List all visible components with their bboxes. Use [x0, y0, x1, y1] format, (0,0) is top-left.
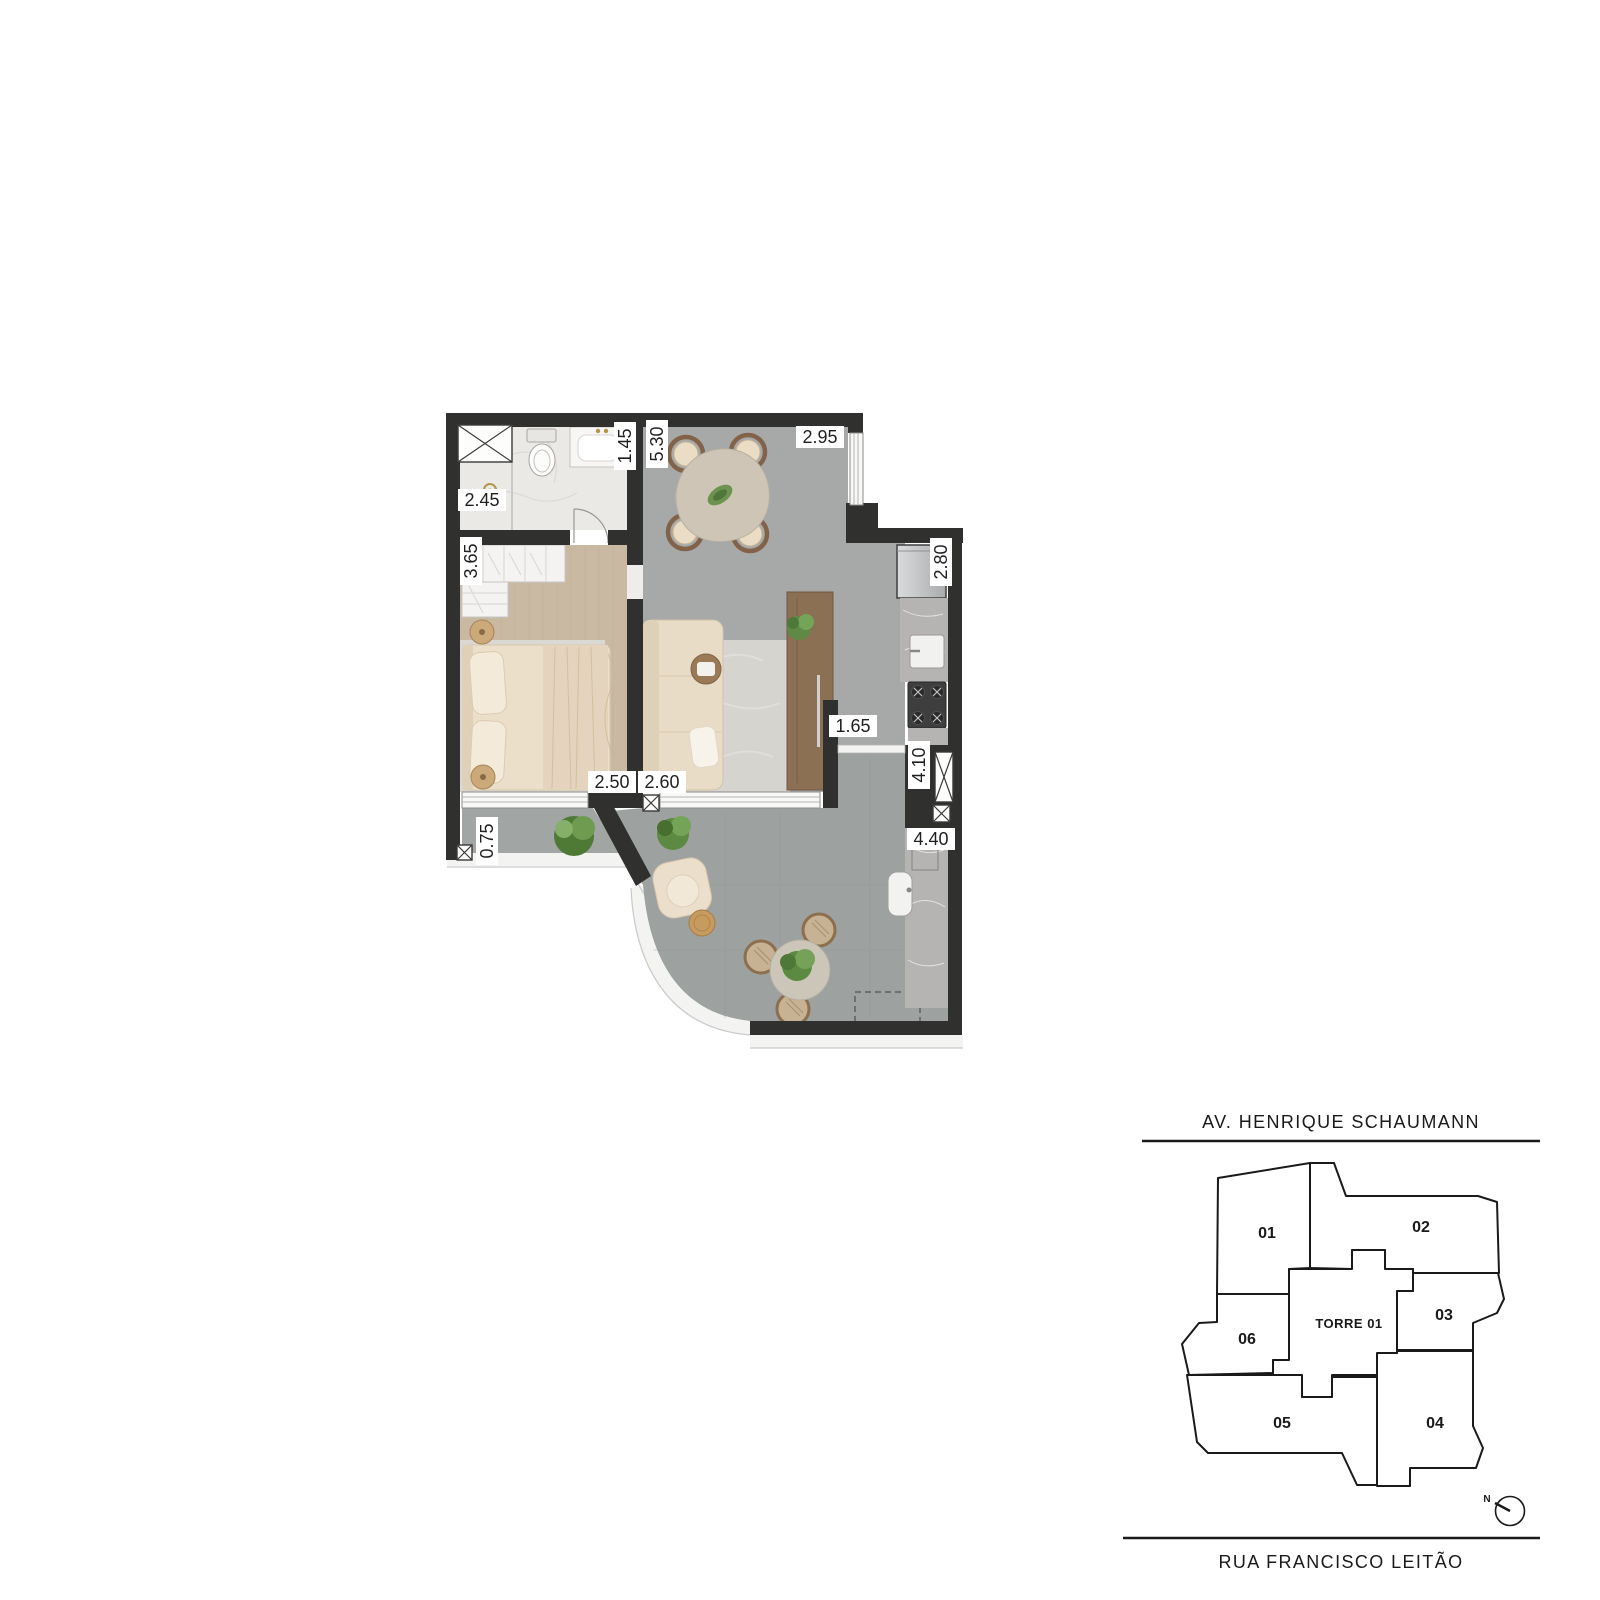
bedroom-window: [462, 792, 588, 808]
dim-label: 2.80: [930, 538, 952, 586]
dim-label: 2.95: [796, 426, 844, 448]
nightstand: [471, 765, 495, 789]
dim-label: 1.45: [614, 422, 636, 470]
dim-value: 4.40: [913, 829, 948, 849]
dim-label: 5.30: [646, 420, 668, 468]
dim-value: 2.60: [644, 772, 679, 792]
dim-value: 2.80: [931, 544, 951, 579]
terrace-bottom-curb: [750, 1035, 963, 1048]
nightstand: [470, 620, 494, 644]
dim-value: 2.95: [802, 427, 837, 447]
dim-label: 4.10: [908, 741, 930, 789]
dim-value: 2.50: [594, 772, 629, 792]
unit-06-label: 06: [1238, 1331, 1256, 1348]
toilet: [527, 429, 556, 476]
dim-value: 2.45: [464, 490, 499, 510]
duct-shaft: [458, 425, 512, 462]
unit-05-label: 05: [1273, 1415, 1291, 1432]
dim-label: 1.65: [829, 715, 877, 737]
dim-value: 3.65: [461, 543, 481, 578]
stove: [908, 682, 946, 728]
street-bottom-label: RUA FRANCISCO LEITÃO: [1218, 1551, 1463, 1572]
balcony-curb: [447, 853, 630, 868]
corner-column: [643, 795, 659, 811]
dim-label: 2.60: [638, 771, 686, 793]
unit-04-label: 04: [1426, 1415, 1444, 1432]
passage-threshold: [838, 745, 905, 753]
outdoor-dining-table: [770, 940, 830, 1000]
service-shaft: [933, 805, 950, 822]
living-window: [660, 792, 820, 808]
dim-value: 1.65: [835, 716, 870, 736]
dim-label: 2.45: [458, 489, 506, 511]
dim-label: 0.75: [476, 817, 498, 865]
north-label: N: [1483, 1494, 1490, 1505]
street-top-label: AV. HENRIQUE SCHAUMANN: [1202, 1112, 1480, 1132]
floor-plan: 2.45 1.45 5.30 2.95 3.65 2.80 2.50 2.60: [425, 385, 975, 1075]
service-shaft: [935, 752, 953, 802]
outdoor-side-table: [689, 910, 715, 936]
terrace-sink: [888, 872, 912, 916]
coffee-table: [691, 654, 721, 684]
dim-label: 3.65: [460, 537, 482, 585]
tower-label: TORRE 01: [1315, 1316, 1382, 1331]
dim-value: 0.75: [477, 823, 497, 858]
dim-value: 5.30: [647, 426, 667, 461]
dim-label: 2.50: [588, 771, 636, 793]
kitchen-counter: [900, 598, 948, 682]
north-compass: N: [1483, 1494, 1524, 1526]
dining-table: [676, 449, 770, 542]
bedroom-doorway: [627, 565, 643, 599]
entry-door: [850, 433, 863, 505]
dim-value: 4.10: [909, 747, 929, 782]
corner-column: [457, 845, 472, 860]
unit-02-label: 02: [1412, 1219, 1430, 1236]
unit-03-label: 03: [1435, 1307, 1453, 1324]
dim-value: 1.45: [615, 428, 635, 463]
page-canvas: 2.45 1.45 5.30 2.95 3.65 2.80 2.50 2.60: [0, 0, 1600, 1600]
dim-label: 4.40: [907, 828, 955, 850]
unit-01-label: 01: [1258, 1225, 1276, 1242]
sofa: [643, 620, 723, 790]
unit-02-region: [1310, 1163, 1499, 1273]
key-plan: AV. HENRIQUE SCHAUMANN 01 02 03 04 05 06…: [1115, 1090, 1545, 1590]
